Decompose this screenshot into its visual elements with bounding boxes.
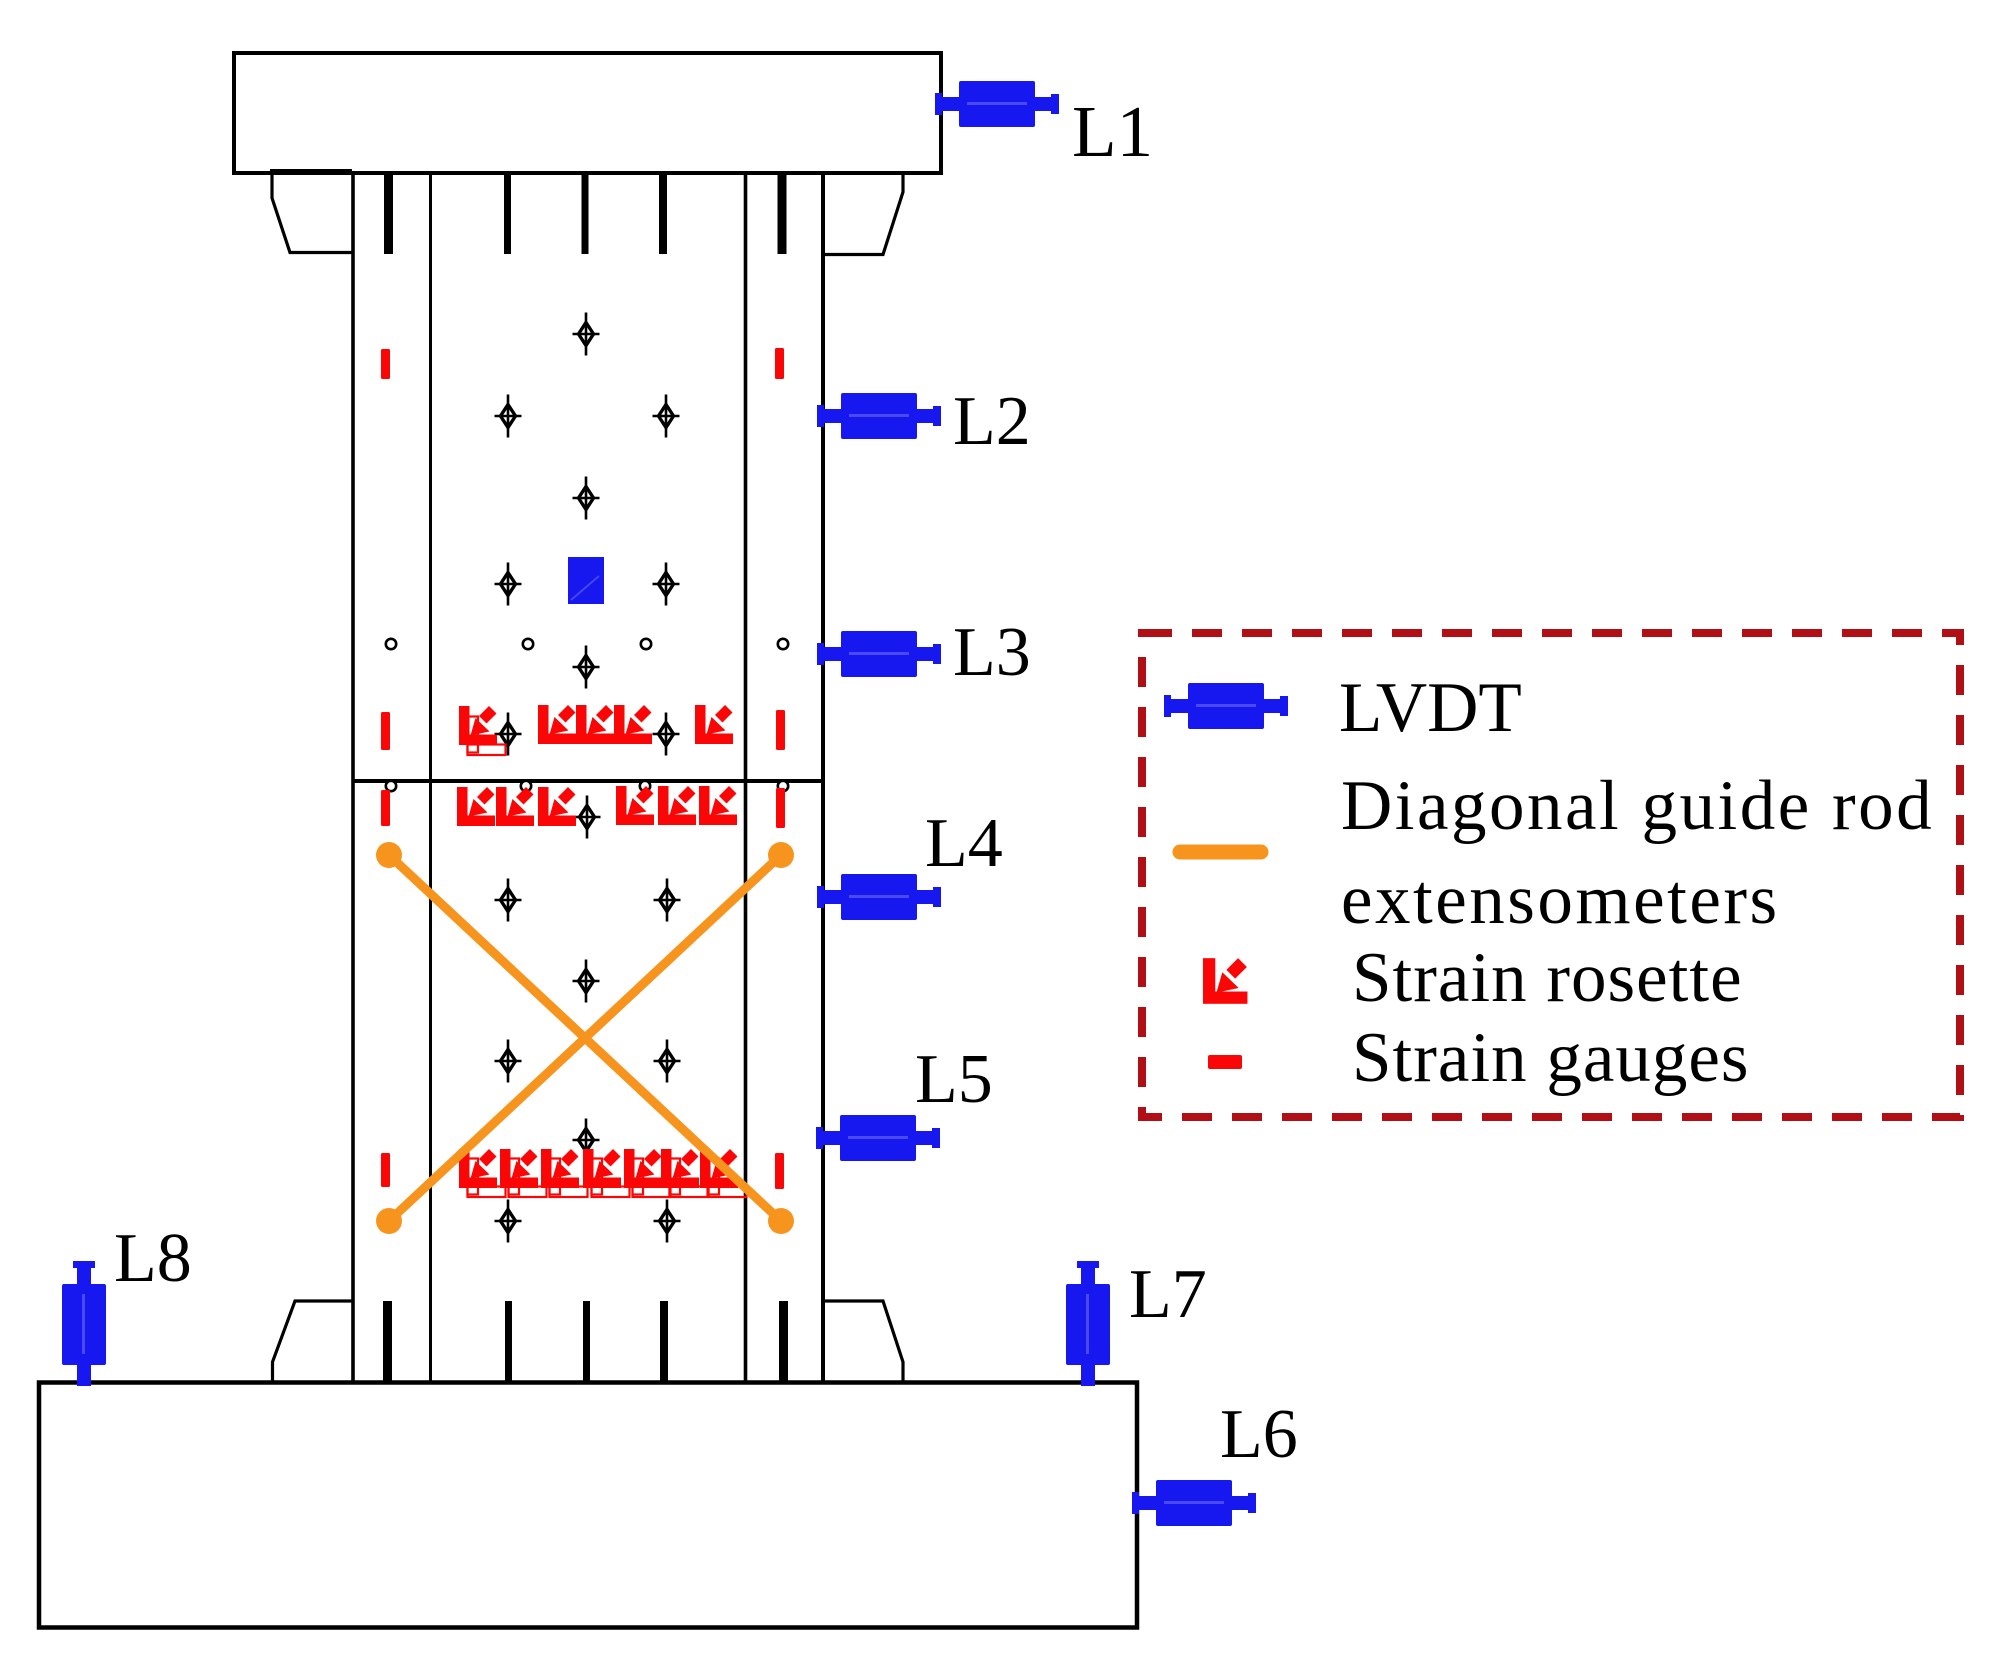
- svg-text:L4: L4: [925, 805, 1003, 882]
- svg-text:L2: L2: [953, 383, 1031, 460]
- svg-text:L5: L5: [915, 1041, 993, 1118]
- svg-text:LVDT: LVDT: [1339, 669, 1522, 747]
- svg-text:L3: L3: [953, 614, 1031, 691]
- svg-text:L1: L1: [1072, 91, 1153, 172]
- svg-text:extensometers: extensometers: [1341, 861, 1780, 939]
- svg-text:Strain gauges: Strain gauges: [1352, 1019, 1750, 1097]
- svg-text:L8: L8: [114, 1220, 192, 1297]
- svg-text:L6: L6: [1220, 1396, 1298, 1473]
- svg-text:Strain rosette: Strain rosette: [1352, 939, 1743, 1017]
- svg-text:Diagonal guide rod: Diagonal guide rod: [1341, 767, 1934, 845]
- svg-text:L7: L7: [1129, 1256, 1207, 1333]
